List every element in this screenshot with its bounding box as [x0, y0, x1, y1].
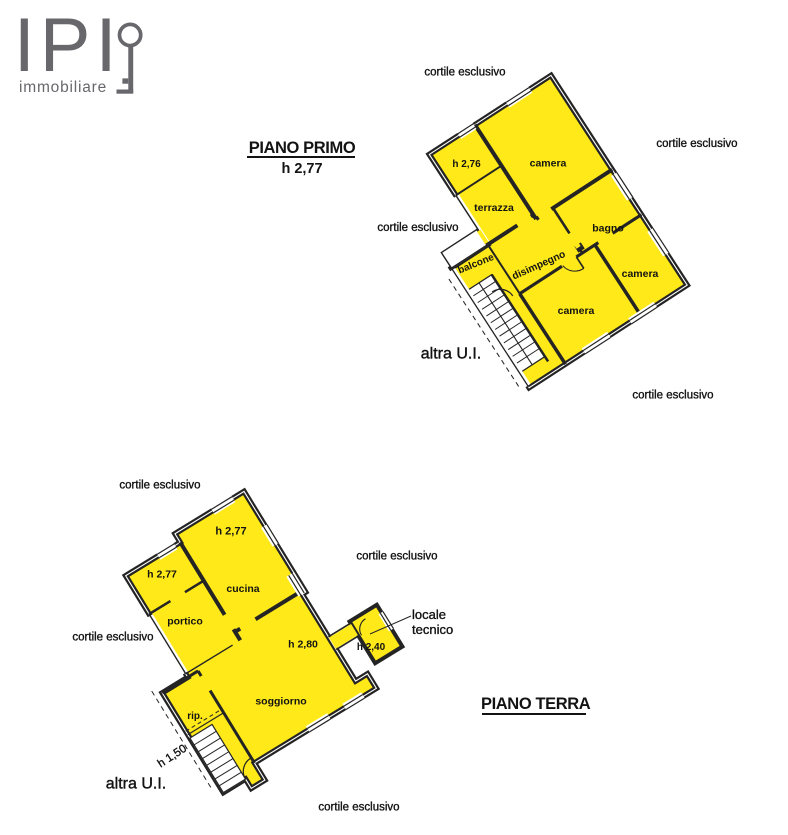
svg-text:cortile esclusivo: cortile esclusivo [377, 222, 458, 234]
svg-text:h 2,80: h 2,80 [288, 639, 318, 651]
svg-text:cortile esclusivo: cortile esclusivo [318, 802, 399, 814]
svg-text:cortile esclusivo: cortile esclusivo [356, 551, 437, 563]
svg-text:h 2,77: h 2,77 [147, 569, 177, 581]
svg-text:h 2,40: h 2,40 [357, 642, 386, 653]
svg-text:camera: camera [530, 158, 567, 170]
svg-text:camera: camera [558, 305, 595, 317]
svg-text:cortile esclusivo: cortile esclusivo [424, 67, 505, 79]
svg-text:cortile esclusivo: cortile esclusivo [72, 632, 153, 644]
svg-text:cortile esclusivo: cortile esclusivo [632, 390, 713, 402]
svg-text:h 2,77: h 2,77 [215, 526, 246, 538]
svg-text:cucina: cucina [226, 583, 259, 595]
svg-text:locale: locale [412, 607, 446, 622]
svg-text:altra U.I.: altra U.I. [106, 776, 166, 793]
svg-text:soggiorno: soggiorno [255, 696, 306, 708]
svg-text:h 2,76: h 2,76 [452, 159, 481, 170]
svg-text:rip.: rip. [187, 711, 203, 722]
svg-text:terrazza: terrazza [474, 202, 514, 214]
svg-text:cortile esclusivo: cortile esclusivo [656, 138, 737, 150]
svg-text:altra U.I.: altra U.I. [421, 346, 481, 363]
svg-text:camera: camera [622, 268, 659, 280]
svg-text:tecnico: tecnico [412, 622, 453, 637]
svg-text:portico: portico [167, 616, 203, 628]
svg-text:cortile esclusivo: cortile esclusivo [119, 480, 200, 492]
svg-text:bagno: bagno [592, 223, 624, 235]
svg-text:h 1,50: h 1,50 [156, 743, 189, 770]
